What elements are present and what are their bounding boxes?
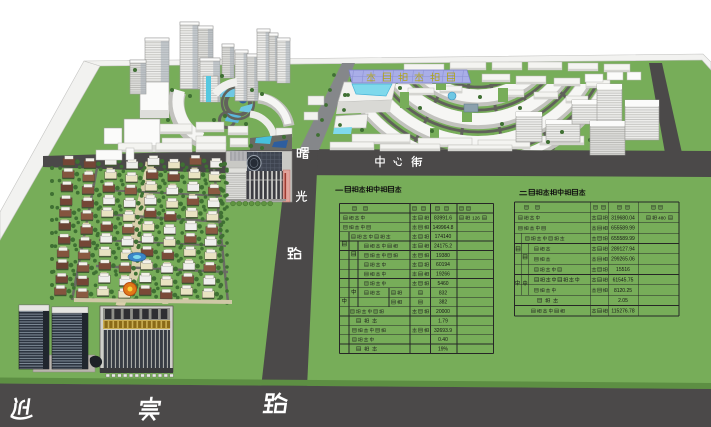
svg-text:8120.25: 8120.25 xyxy=(614,288,632,294)
svg-text:319680.04: 319680.04 xyxy=(611,215,635,221)
svg-text:382: 382 xyxy=(439,300,448,306)
svg-text:1.79: 1.79 xyxy=(438,318,448,324)
svg-text:0.40: 0.40 xyxy=(438,337,448,343)
svg-text:126: 126 xyxy=(472,215,480,220)
svg-text:83991.6: 83991.6 xyxy=(434,215,452,221)
svg-text:19%: 19% xyxy=(438,347,449,353)
svg-text:19266: 19266 xyxy=(436,272,450,278)
svg-text:289127.94: 289127.94 xyxy=(611,246,635,252)
svg-text:174140: 174140 xyxy=(435,234,452,240)
svg-text:32693.9: 32693.9 xyxy=(434,328,452,334)
svg-text:655589.99: 655589.99 xyxy=(611,236,635,242)
svg-text:832: 832 xyxy=(439,290,448,296)
svg-text:15516: 15516 xyxy=(616,267,630,273)
svg-text:2.05: 2.05 xyxy=(618,298,628,304)
svg-text:19380: 19380 xyxy=(436,253,450,259)
svg-text:655589.99: 655589.99 xyxy=(611,226,635,232)
svg-text:60194: 60194 xyxy=(436,262,450,268)
svg-text:299265.06: 299265.06 xyxy=(611,257,635,263)
svg-text:149964.8: 149964.8 xyxy=(433,225,454,231)
svg-text:480: 480 xyxy=(658,215,666,220)
svg-text:115276.78: 115276.78 xyxy=(611,309,634,315)
svg-text:61545.75: 61545.75 xyxy=(613,277,634,283)
svg-text:5460: 5460 xyxy=(437,281,448,287)
svg-text:20000: 20000 xyxy=(436,309,450,315)
svg-text:24175.2: 24175.2 xyxy=(434,244,452,250)
